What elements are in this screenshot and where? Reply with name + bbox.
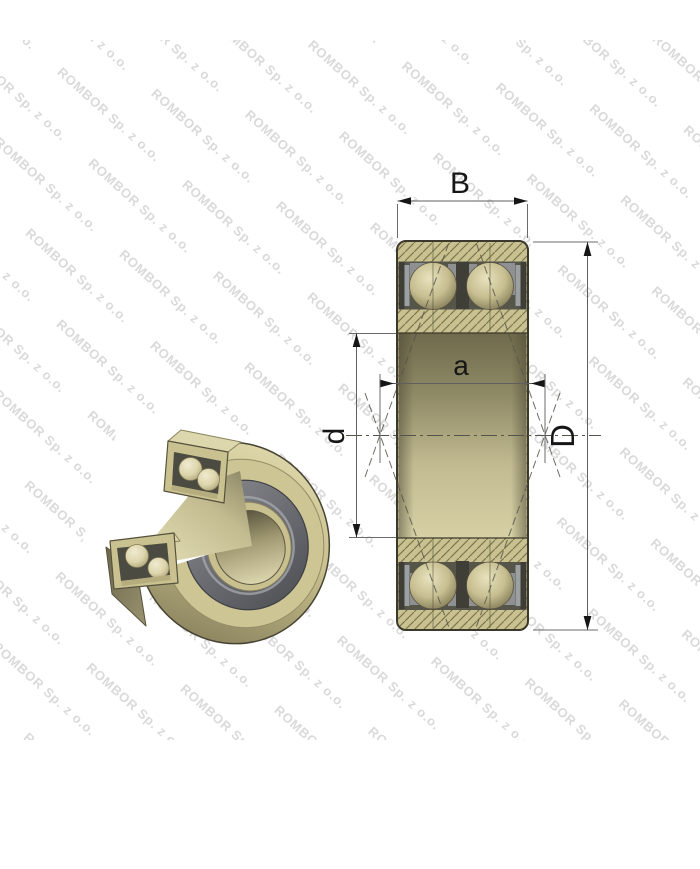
dim-label-a: a: [453, 350, 469, 381]
dimension-B: B: [398, 167, 528, 238]
top-ball-row: [399, 262, 527, 310]
dim-label-D: D: [544, 424, 581, 448]
iso-ball: [198, 469, 220, 491]
dim-label-B: B: [450, 167, 470, 200]
iso-ball: [148, 558, 169, 579]
iso-ball: [126, 545, 149, 568]
bottom-ball-row: [399, 561, 527, 610]
seal-shield: [399, 262, 405, 309]
page: ROMBOR Sp. z o.o.ROMBOR Sp. z o.o.ROMBOR…: [0, 0, 700, 869]
seal-shield: [399, 562, 405, 609]
seal-shield: [521, 262, 527, 309]
iso-view: [76, 417, 352, 665]
seal-shield: [521, 562, 527, 609]
dim-label-d: d: [318, 428, 351, 445]
bearing-drawing: B D d a: [0, 0, 700, 869]
